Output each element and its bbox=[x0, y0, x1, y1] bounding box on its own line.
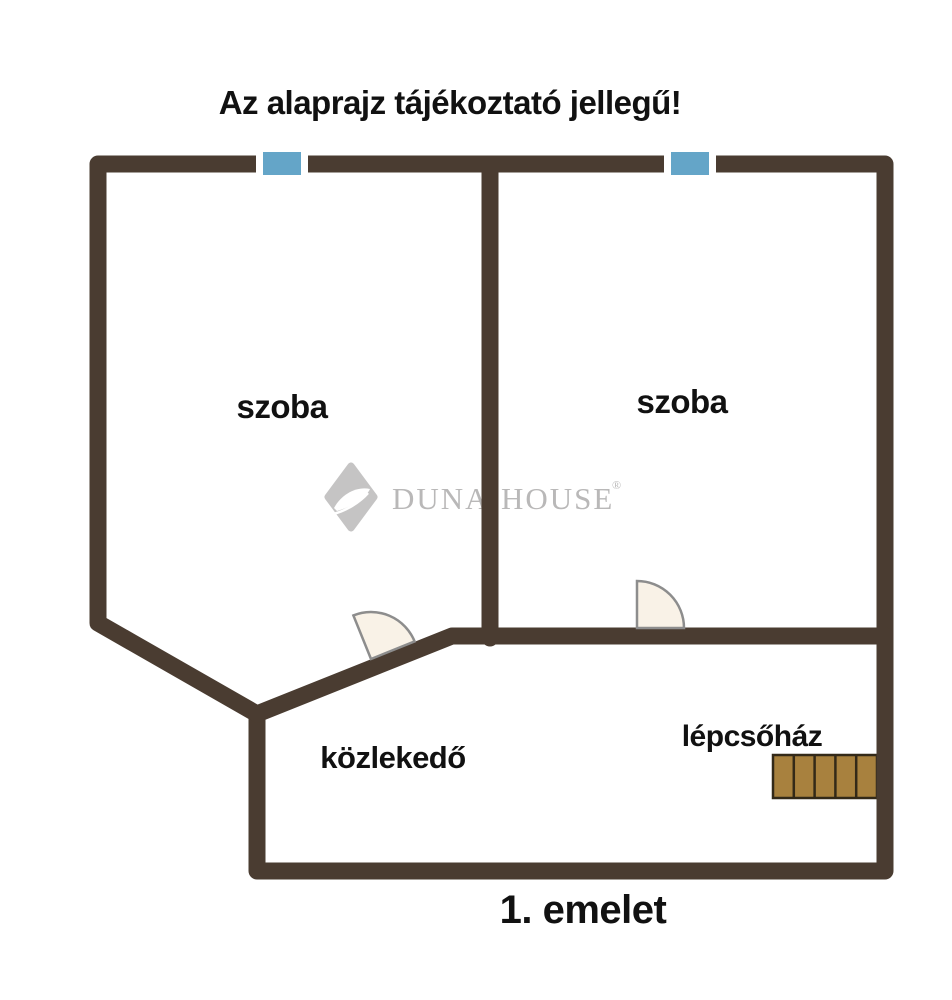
window-right-icon bbox=[664, 149, 716, 179]
hallway-label: közlekedő bbox=[293, 740, 493, 776]
logo-word-duna: DUNA bbox=[392, 481, 490, 516]
logo-word-house: HOUSE bbox=[501, 481, 614, 516]
stairwell-label: lépcsőház bbox=[652, 720, 852, 754]
window-glass bbox=[263, 152, 301, 175]
stairs-icon bbox=[773, 755, 877, 798]
window-left-icon bbox=[256, 149, 308, 179]
room-label-left: szoba bbox=[182, 388, 382, 426]
floor-plan-drawing: DUNA HOUSE ® bbox=[0, 0, 952, 1000]
stairs-body bbox=[773, 755, 877, 798]
hallway-wall bbox=[257, 636, 885, 714]
floor-caption: 1. emelet bbox=[483, 888, 683, 933]
window-glass bbox=[671, 152, 709, 175]
logo-registered-mark: ® bbox=[612, 478, 621, 492]
room-label-right: szoba bbox=[582, 383, 782, 421]
floor-plan-page: Az alaprajz tájékoztató jellegű! DUNA HO… bbox=[0, 0, 952, 1000]
door-swing-room-right-icon bbox=[637, 581, 684, 628]
duna-house-logo: DUNA HOUSE ® bbox=[328, 466, 621, 528]
